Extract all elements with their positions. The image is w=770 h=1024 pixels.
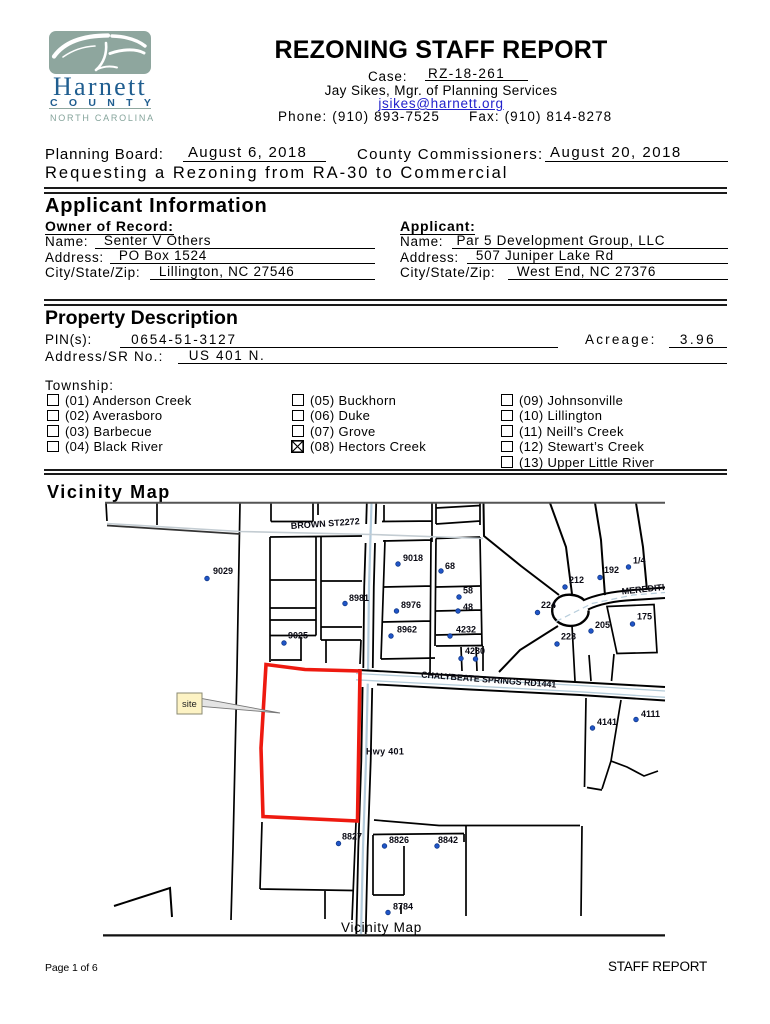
svg-text:68: 68 [445,561,455,571]
svg-text:224: 224 [541,600,556,610]
svg-text:9025: 9025 [288,631,308,641]
svg-text:58: 58 [463,586,473,596]
svg-text:4141: 4141 [597,717,617,727]
svg-text:8784: 8784 [393,902,413,912]
svg-text:48: 48 [463,602,473,612]
svg-text:212: 212 [569,575,584,585]
svg-text:175: 175 [637,612,652,622]
svg-text:205: 205 [595,620,610,630]
svg-text:Hwy 401: Hwy 401 [366,747,404,757]
svg-text:9029: 9029 [213,566,233,576]
svg-text:8842: 8842 [438,835,458,845]
svg-text:9018: 9018 [403,553,423,563]
svg-text:192: 192 [604,565,619,575]
svg-text:site: site [182,699,197,710]
svg-text:4230: 4230 [465,646,485,656]
svg-text:8827: 8827 [342,832,362,842]
svg-text:8976: 8976 [401,600,421,610]
svg-text:223: 223 [561,632,576,642]
svg-text:4111: 4111 [641,709,660,719]
svg-text:4232: 4232 [456,625,476,635]
svg-text:8826: 8826 [389,835,409,845]
svg-text:8981: 8981 [349,593,369,603]
svg-text:1/4: 1/4 [633,556,646,566]
svg-text:8962: 8962 [397,625,417,635]
svg-text:BROWN ST2272: BROWN ST2272 [290,516,360,531]
